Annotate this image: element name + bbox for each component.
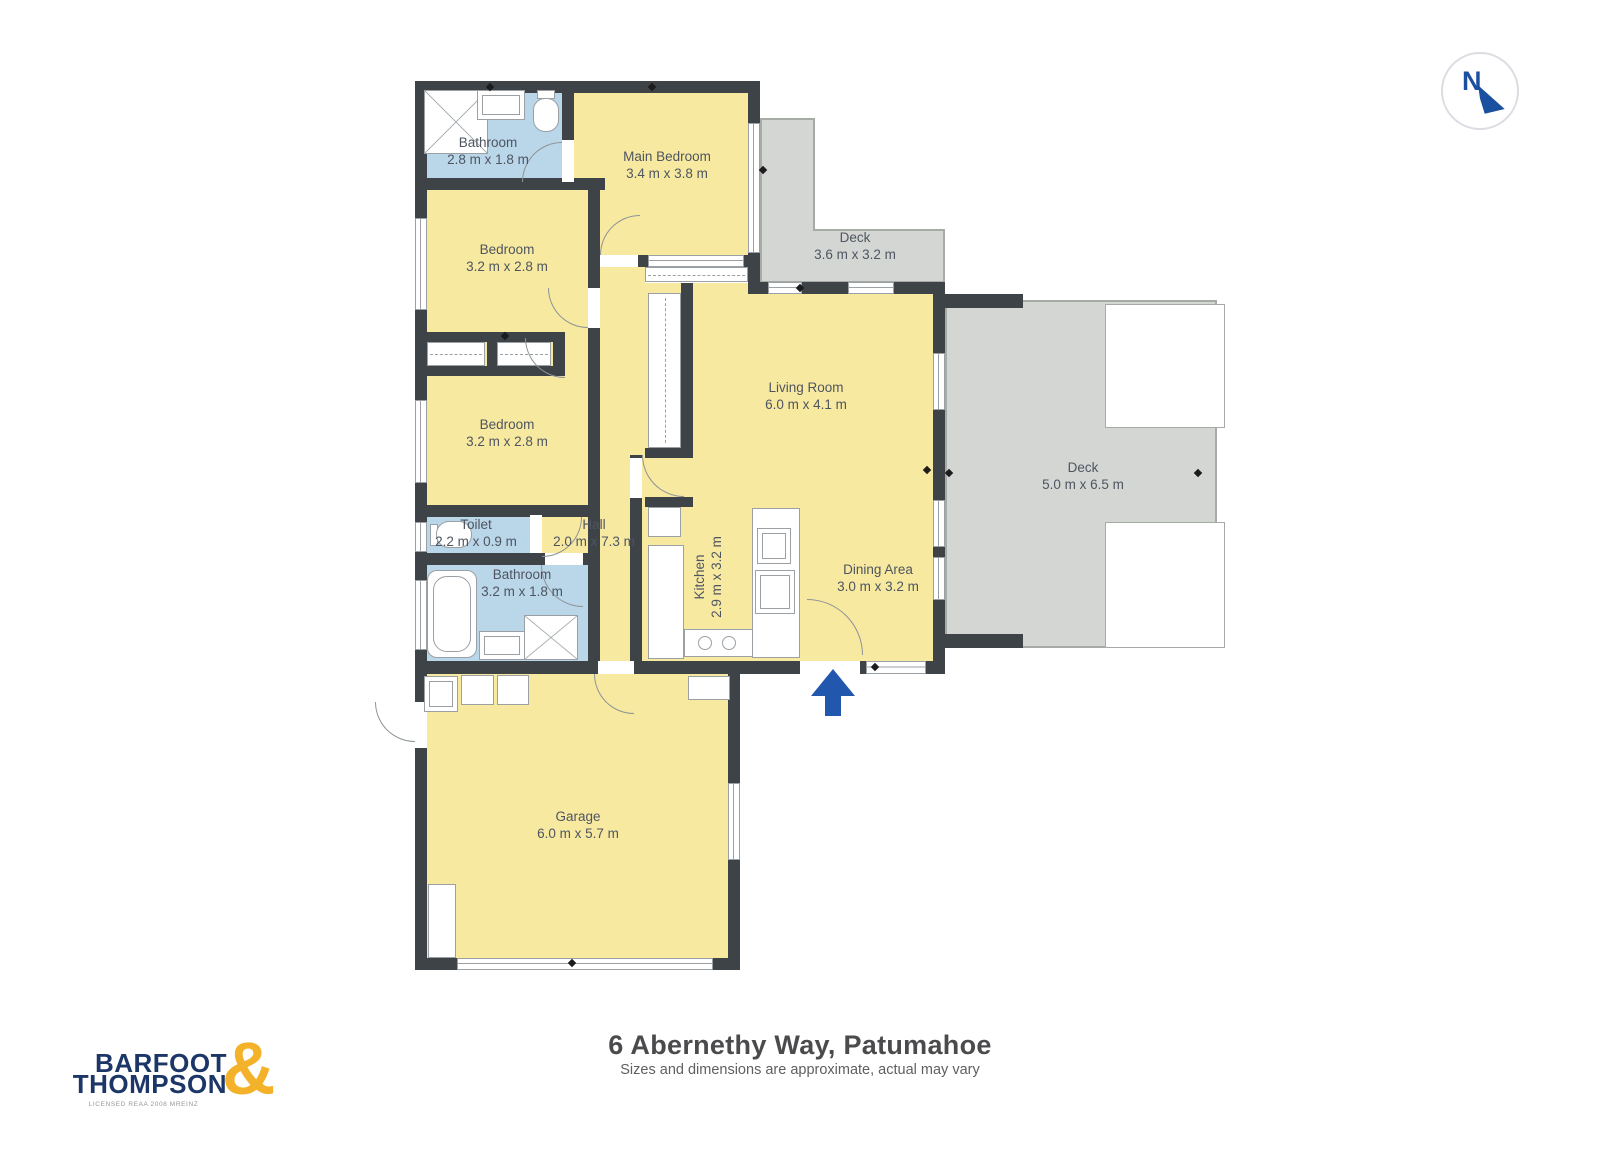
window: [848, 282, 894, 294]
room-label-hall: Hall 2.0 m x 7.3 m: [553, 516, 635, 550]
entrance-arrow-icon: [811, 669, 855, 696]
wall: [487, 332, 497, 376]
room-dims: 3.2 m x 1.8 m: [481, 583, 563, 600]
room-dims: 3.6 m x 3.2 m: [814, 246, 896, 263]
wall: [945, 634, 1023, 648]
door-opening: [598, 661, 634, 674]
door-opening: [588, 288, 600, 328]
room-name: Kitchen: [691, 536, 708, 618]
door-opening: [562, 140, 574, 182]
brand-logo: BARFOOT THOMPSON LICENSED REAA 2008 MREI…: [60, 1053, 227, 1108]
wall: [415, 178, 605, 190]
cooktop-burner: [722, 636, 736, 650]
oven: [755, 570, 795, 614]
deck-step-top: [1105, 304, 1225, 428]
room-name: Deck: [814, 229, 896, 246]
room-label-garage: Garage 6.0 m x 5.7 m: [537, 808, 619, 842]
bathtub: [427, 570, 477, 658]
window: [415, 218, 427, 310]
room-label-bathroom-bottom: Bathroom 3.2 m x 1.8 m: [481, 566, 563, 600]
window: [933, 353, 945, 410]
kitchen-sink: [757, 528, 791, 564]
garage-recess: [428, 884, 456, 958]
linen-closet: [648, 293, 681, 448]
wall: [681, 283, 693, 458]
room-name: Deck: [1042, 459, 1124, 476]
room-name: Main Bedroom: [623, 148, 711, 165]
room-dims: 5.0 m x 6.5 m: [1042, 476, 1124, 493]
vanity: [479, 631, 525, 660]
window: [648, 255, 744, 267]
room-dims: 2.9 m x 3.2 m: [708, 536, 725, 618]
north-compass: N: [1441, 52, 1519, 130]
room-name: Living Room: [765, 379, 847, 396]
room-label-bathroom-top: Bathroom 2.8 m x 1.8 m: [447, 134, 529, 168]
window: [933, 557, 945, 600]
room-label-bedroom-lower: Bedroom 3.2 m x 2.8 m: [466, 416, 548, 450]
door-opening: [630, 458, 642, 498]
logo-ampersand: &: [222, 1034, 275, 1104]
room-dims: 2.0 m x 7.3 m: [553, 533, 635, 550]
room-dims: 6.0 m x 4.1 m: [765, 396, 847, 413]
room-name: Toilet: [435, 516, 517, 533]
deck-step-bottom: [1105, 522, 1225, 648]
room-dims: 2.2 m x 0.9 m: [435, 533, 517, 550]
toilet-fixture: [533, 98, 559, 132]
room-name: Hall: [553, 516, 635, 533]
logo-caption: LICENSED REAA 2008 MREINZ: [60, 1101, 227, 1108]
window-bay: [645, 267, 748, 282]
room-label-main-bedroom: Main Bedroom 3.4 m x 3.8 m: [623, 148, 711, 182]
vanity: [477, 90, 525, 120]
room-dims: 2.8 m x 1.8 m: [447, 151, 529, 168]
laundry-tub: [424, 676, 458, 712]
pantry: [648, 507, 681, 537]
window: [415, 580, 427, 650]
door-opening: [600, 255, 638, 267]
wall: [588, 178, 600, 667]
garage-door: [457, 958, 713, 970]
room-name: Garage: [537, 808, 619, 825]
wall: [645, 497, 693, 507]
room-label-dining-area: Dining Area 3.0 m x 3.2 m: [837, 561, 919, 595]
floorplan-canvas: Bathroom 2.8 m x 1.8 m Main Bedroom 3.4 …: [0, 0, 1600, 1167]
room-dims: 3.4 m x 3.8 m: [623, 165, 711, 182]
hot-water-cupboard: [688, 676, 730, 700]
logo-line2: THOMPSON: [60, 1074, 227, 1095]
wall: [933, 282, 945, 674]
room-dims: 3.2 m x 2.8 m: [466, 258, 548, 275]
room-name: Bathroom: [481, 566, 563, 583]
room-name: Bedroom: [466, 241, 548, 258]
room-name: Dining Area: [837, 561, 919, 578]
room-label-deck-top: Deck 3.6 m x 3.2 m: [814, 229, 896, 263]
window: [728, 783, 740, 860]
window: [415, 400, 427, 483]
door-opening: [530, 515, 542, 553]
kitchen-counter: [648, 545, 684, 659]
wall: [945, 294, 1023, 308]
window: [933, 500, 945, 547]
shower: [524, 615, 578, 660]
room-label-kitchen: Kitchen 2.9 m x 3.2 m: [691, 536, 725, 618]
room-label-bedroom-upper: Bedroom 3.2 m x 2.8 m: [466, 241, 548, 275]
window: [415, 522, 427, 552]
room-name: Bedroom: [466, 416, 548, 433]
room-label-toilet: Toilet 2.2 m x 0.9 m: [435, 516, 517, 550]
door-arc: [375, 702, 415, 742]
window: [748, 123, 760, 253]
room-label-deck-right: Deck 5.0 m x 6.5 m: [1042, 459, 1124, 493]
compass-arrow-icon: [1443, 54, 1517, 128]
cooktop-burner: [698, 636, 712, 650]
wardrobe: [427, 342, 485, 366]
room-name: Bathroom: [447, 134, 529, 151]
appliance: [461, 675, 494, 705]
entrance-arrow-shaft: [825, 695, 841, 716]
room-dims: 6.0 m x 5.7 m: [537, 825, 619, 842]
doorway-gap: [565, 332, 588, 376]
appliance: [497, 675, 529, 705]
room-dims: 3.2 m x 2.8 m: [466, 433, 548, 450]
room-label-living-room: Living Room 6.0 m x 4.1 m: [765, 379, 847, 413]
room-dims: 3.0 m x 3.2 m: [837, 578, 919, 595]
